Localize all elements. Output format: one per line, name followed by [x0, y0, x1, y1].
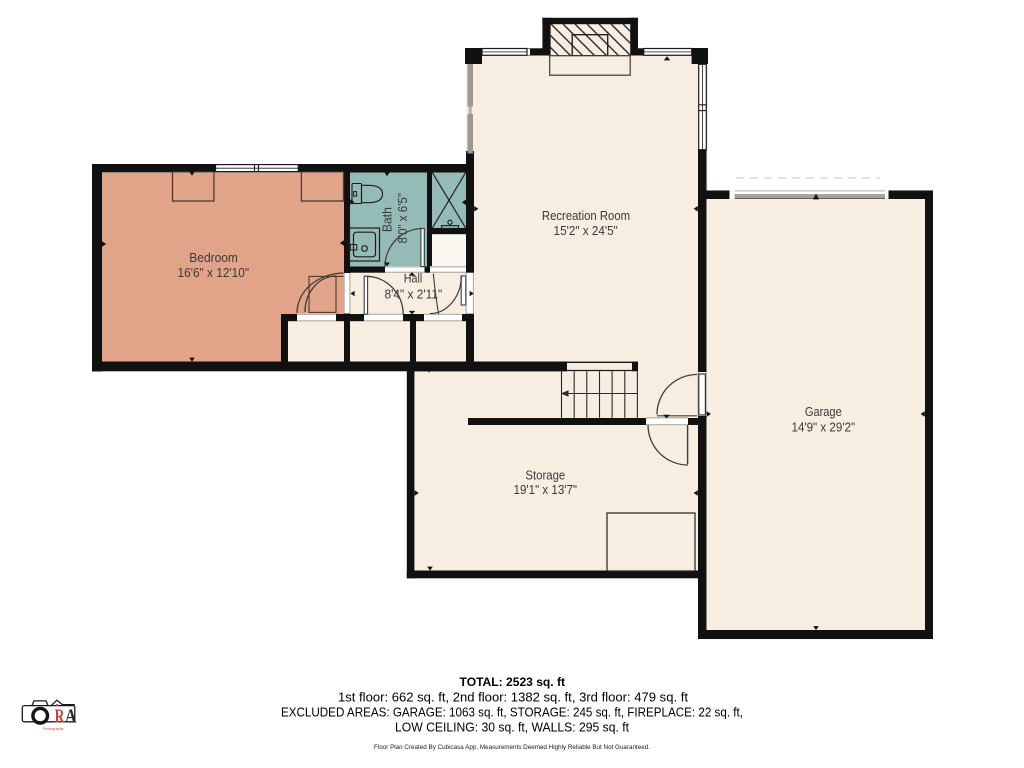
svg-text:Floor Plan Created By Cubicasa: Floor Plan Created By Cubicasa App. Meas…: [374, 744, 650, 751]
svg-text:Bedroom: Bedroom: [189, 250, 238, 265]
svg-text:TOTAL: 2523 sq. ft: TOTAL: 2523 sq. ft: [460, 675, 566, 689]
svg-text:1st floor: 662 sq. ft, 2nd flo: 1st floor: 662 sq. ft, 2nd floor: 1382 s…: [338, 691, 689, 705]
svg-text:Bath: Bath: [380, 207, 394, 232]
svg-text:15'2" x 24'5": 15'2" x 24'5": [554, 223, 618, 238]
svg-text:16'6" x 12'10": 16'6" x 12'10": [178, 265, 250, 280]
svg-text:19'1" x 13'7": 19'1" x 13'7": [514, 482, 578, 497]
svg-text:8'4" x 2'11": 8'4" x 2'11": [385, 287, 443, 301]
svg-text:LOW CEILING: 30 sq. ft, WALLS:: LOW CEILING: 30 sq. ft, WALLS: 295 sq. f…: [395, 721, 629, 735]
svg-text:A: A: [65, 706, 77, 728]
svg-text:Storage: Storage: [525, 468, 565, 483]
svg-text:Garage: Garage: [805, 404, 842, 419]
svg-text:8'0" x 6'5": 8'0" x 6'5": [396, 193, 410, 244]
svg-text:Recreation Room: Recreation Room: [542, 208, 630, 223]
svg-text:R: R: [55, 706, 65, 728]
svg-text:14'9" x 29'2": 14'9" x 29'2": [792, 419, 856, 434]
svg-text:Photographs: Photographs: [43, 727, 64, 731]
svg-text:EXCLUDED AREAS: GARAGE: 1063 s: EXCLUDED AREAS: GARAGE: 1063 sq. ft, STO…: [281, 706, 743, 720]
svg-text:Hall: Hall: [404, 271, 423, 285]
